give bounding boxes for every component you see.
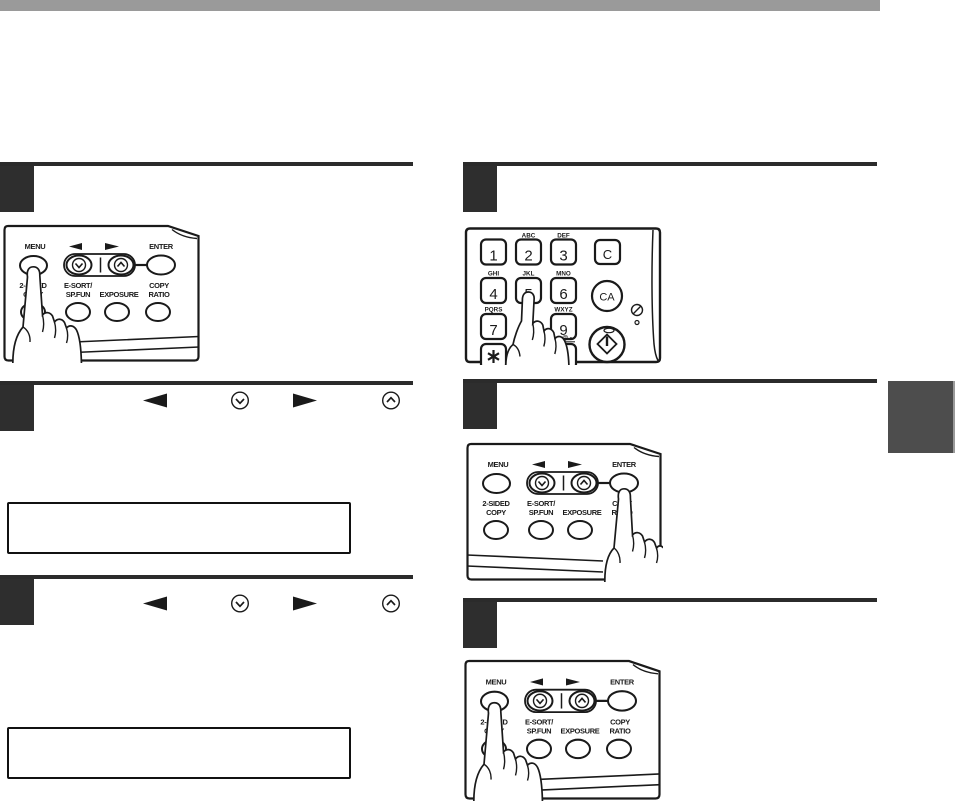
display-message-box <box>7 727 351 779</box>
step-number-box <box>0 579 34 625</box>
svg-text:4: 4 <box>489 286 497 303</box>
svg-text:2: 2 <box>524 248 532 265</box>
scroll-down-key-icon <box>232 392 249 409</box>
esort-spfun-label: E-SORT/ <box>525 717 554 726</box>
svg-text:COPY: COPY <box>486 508 506 517</box>
letters-pqrs-label: PQRS <box>485 307 503 314</box>
step-rule <box>463 598 877 602</box>
step-rule <box>0 381 413 385</box>
copy-ratio-label: COPY <box>610 717 630 726</box>
svg-text:C: C <box>603 247 612 262</box>
esort-spfun-key <box>529 521 553 539</box>
copy-ratio-key <box>607 740 631 758</box>
exposure-key <box>568 521 592 539</box>
letters-wxyz-label: WXYZ <box>554 307 572 314</box>
menu-panel-illustration: MENU ENTER 2-SIDED COPY E-SORT/ SP.FUN E… <box>2 224 201 363</box>
inline-key-symbols <box>130 591 410 617</box>
letters-ghi-label: GHI <box>488 271 499 278</box>
scroll-up-key-icon <box>383 595 400 612</box>
exposure-label: EXPOSURE <box>100 290 139 299</box>
enter-key <box>147 256 175 275</box>
enter-key <box>608 691 636 710</box>
svg-text:RATIO: RATIO <box>609 727 630 736</box>
menu-panel-illustration: MENU ENTER 2-SIDED COPY E-SORT/ SP.FUN E… <box>463 659 662 801</box>
step-rule <box>0 162 413 166</box>
left-arrow-key-icon <box>143 394 167 408</box>
chapter-index-tab <box>888 381 953 453</box>
page-header-bar <box>0 0 880 11</box>
menu-key-label: MENU <box>25 242 46 251</box>
keypad-illustration: ABC DEF 1 2 3 C GHI JKL MNO 4 5 6 CA PQR… <box>463 226 663 365</box>
menu-key <box>483 474 510 493</box>
enter-key-label: ENTER <box>612 460 637 469</box>
svg-text:6: 6 <box>559 286 567 303</box>
inline-key-symbols <box>130 388 410 414</box>
two-sided-copy-key <box>484 521 508 539</box>
enter-panel-illustration: MENU ENTER 2-SIDED COPY E-SORT/ SP.FUN E… <box>465 442 663 582</box>
svg-text:7: 7 <box>489 322 497 339</box>
esort-spfun-key <box>527 740 551 758</box>
right-arrow-key-icon <box>293 597 317 611</box>
step-rule <box>463 379 877 383</box>
menu-key-label: MENU <box>488 460 509 469</box>
step-number-box <box>0 166 34 212</box>
copy-ratio-key <box>146 303 170 321</box>
esort-spfun-label: E-SORT/ <box>64 281 93 290</box>
exposure-key <box>105 303 129 321</box>
step-number-box <box>463 166 497 212</box>
manual-page: MENU ENTER 2-SIDED COPY E-SORT/ SP.FUN E… <box>0 0 955 809</box>
svg-text:CA: CA <box>599 292 615 304</box>
svg-text:RATIO: RATIO <box>148 290 170 299</box>
svg-text:SP.FUN: SP.FUN <box>527 727 551 736</box>
left-arrow-key-icon <box>143 597 167 611</box>
step-number-box <box>0 385 34 431</box>
right-arrow-key-icon <box>293 394 317 408</box>
step-number-box <box>463 602 497 648</box>
exposure-label: EXPOSURE <box>561 727 600 736</box>
svg-text:1: 1 <box>489 248 497 265</box>
esort-spfun-label: E-SORT/ <box>527 499 556 508</box>
svg-text:SP.FUN: SP.FUN <box>66 290 90 299</box>
step-rule <box>0 575 413 579</box>
enter-key-label: ENTER <box>610 677 635 686</box>
scroll-up-key-icon <box>383 392 400 409</box>
letters-mno-label: MNO <box>556 271 571 278</box>
copy-ratio-label: COPY <box>149 281 169 290</box>
enter-key-label: ENTER <box>149 242 174 251</box>
exposure-key <box>566 740 590 758</box>
two-sided-copy-label: 2-SIDED <box>482 499 510 508</box>
menu-key-label: MENU <box>486 677 508 686</box>
letters-jkl-label: JKL <box>523 271 535 278</box>
svg-text:3: 3 <box>559 248 567 265</box>
step-number-box <box>463 383 497 429</box>
esort-spfun-key <box>66 303 90 321</box>
step-rule <box>463 162 877 166</box>
scroll-down-key-icon <box>232 595 249 612</box>
display-message-box <box>7 502 351 554</box>
svg-text:SP.FUN: SP.FUN <box>529 508 553 517</box>
exposure-label: EXPOSURE <box>563 508 602 517</box>
